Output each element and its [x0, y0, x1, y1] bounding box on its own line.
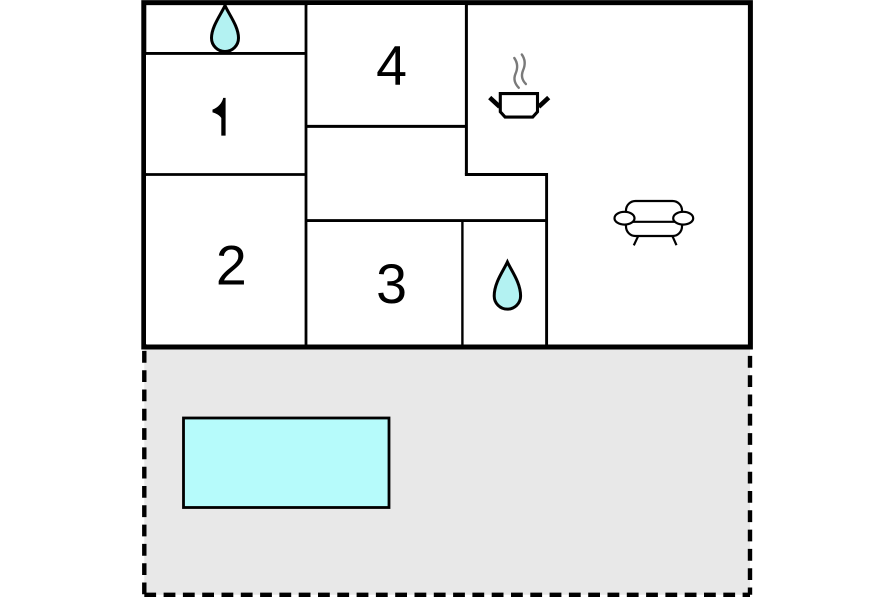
svg-text:4: 4: [376, 34, 407, 96]
svg-text:3: 3: [376, 253, 407, 315]
svg-text:2: 2: [216, 234, 247, 296]
